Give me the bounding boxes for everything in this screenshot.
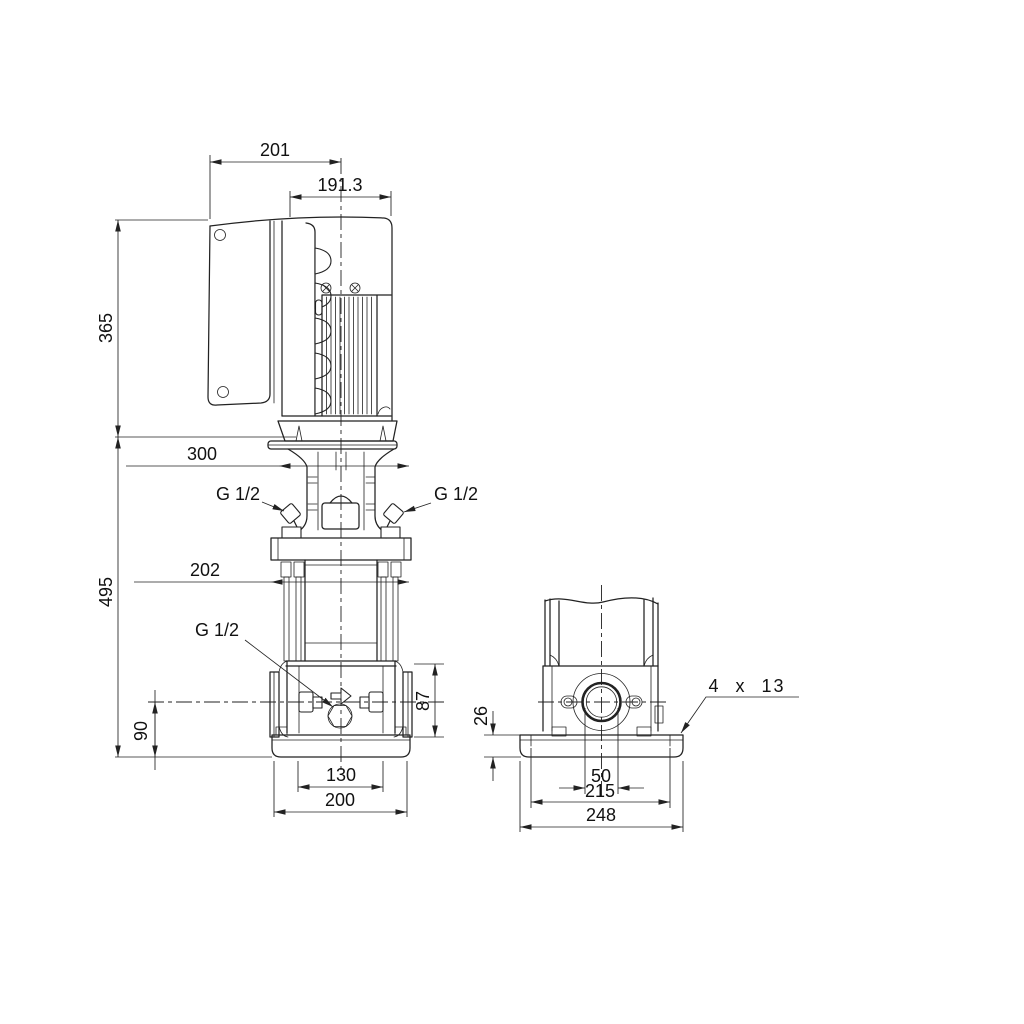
port-label-g12-right: G 1/2: [434, 484, 478, 504]
technical-drawing-canvas: 201 191.3 365 300 495 202 G 1/2 G 1/2 G …: [0, 0, 1024, 1024]
dim-label-4x13: 4 x 13: [708, 676, 785, 696]
dim-label-365: 365: [96, 313, 116, 343]
dim-label-215: 215: [585, 781, 615, 801]
dim-label-130: 130: [326, 765, 356, 785]
port-label-g12-left: G 1/2: [216, 484, 260, 504]
dim-label-495: 495: [96, 577, 116, 607]
dim-label-191-3: 191.3: [317, 175, 362, 195]
dim-label-90: 90: [131, 721, 151, 741]
port-label-g12-drain: G 1/2: [195, 620, 239, 640]
dim-label-26: 26: [471, 706, 491, 726]
dim-label-201: 201: [260, 140, 290, 160]
hinge-detail: [316, 300, 323, 315]
dim-label-300: 300: [187, 444, 217, 464]
pump-dimensional-drawing: 201 191.3 365 300 495 202 G 1/2 G 1/2 G …: [0, 0, 1024, 1024]
drawing-background: [0, 0, 1024, 1024]
dim-label-202: 202: [190, 560, 220, 580]
dim-label-200: 200: [325, 790, 355, 810]
dim-label-248: 248: [586, 805, 616, 825]
plug-nut-left: [282, 527, 301, 538]
plug-nut-right: [381, 527, 400, 538]
dim-label-87: 87: [413, 691, 433, 711]
